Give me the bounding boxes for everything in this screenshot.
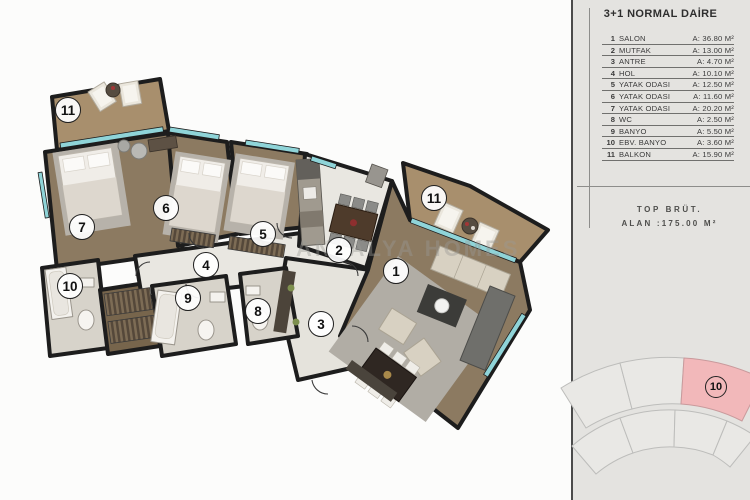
room-legend-table: 1SALONA: 36.80 M²2MUTFAKA: 13.00 M²3ANTR…: [602, 33, 734, 161]
room-bedroom-5: [231, 142, 315, 234]
legend-name: BANYO: [615, 127, 697, 137]
room-balcony-left: [52, 79, 169, 150]
legend-name: YATAK ODASI: [615, 104, 693, 114]
bed-room5: [223, 153, 294, 239]
legend-panel: 3+1 NORMAL DAİRE 1SALONA: 36.80 M²2MUTFA…: [571, 0, 750, 500]
bathtub-room9: [151, 290, 182, 345]
legend-area: A: 2.50 M²: [697, 115, 734, 125]
legend-num: 6: [602, 92, 615, 102]
legend-num: 8: [602, 115, 615, 125]
legend-num: 9: [602, 127, 615, 137]
legend-num: 3: [602, 57, 615, 67]
toilet-room10: [78, 310, 94, 330]
room-ebv-banyo-10: [42, 260, 108, 356]
legend-num: 2: [602, 46, 615, 56]
room-label-8: 8: [245, 298, 271, 324]
room-wc-8: [240, 268, 298, 344]
legend-area: A: 3.60 M²: [697, 138, 734, 148]
legend-name: ANTRE: [615, 57, 697, 67]
dining-table: [352, 340, 422, 410]
balcony-chair: [119, 81, 142, 107]
room-label-10: 10: [57, 273, 83, 299]
balcony-chair: [434, 202, 463, 233]
legend-num: 7: [602, 104, 615, 114]
legend-name: MUTFAK: [615, 46, 693, 56]
armchair: [404, 338, 441, 376]
room-wardrobe-corridor: [100, 282, 160, 354]
room-label-3: 3: [308, 311, 334, 337]
panel-horizontal-rule: [577, 186, 750, 187]
legend-area: A: 10.10 M²: [693, 69, 734, 79]
legend-row: 11BALKONA: 15.90 M²: [602, 149, 734, 161]
dresser-room5: [228, 236, 285, 258]
legend-num: 1: [602, 34, 615, 44]
legend-row: 10EBV. BANYOA: 3.60 M²: [602, 137, 734, 149]
panel-vertical-rule: [589, 8, 590, 228]
counter-room8: [273, 270, 296, 333]
plant: [293, 319, 300, 326]
balcony-chair: [88, 82, 116, 112]
bed-room7: [52, 143, 130, 236]
legend-num: 10: [602, 138, 615, 148]
legend-area: A: 36.80 M²: [693, 34, 734, 44]
room-label-5: 5: [250, 221, 276, 247]
fridge: [366, 164, 388, 188]
legend-row: 9BANYOA: 5.50 M²: [602, 126, 734, 138]
legend-name: HOL: [615, 69, 693, 79]
legend-row: 6YATAK ODASIA: 11.60 M²: [602, 91, 734, 103]
room-banyo-9: [152, 276, 236, 356]
kitchen-counter: [296, 158, 325, 245]
total-area-value: ALAN :175.00 M²: [589, 219, 750, 228]
legend-name: BALKON: [615, 150, 693, 160]
salon-rug: [329, 256, 495, 422]
room-antre-3: [279, 258, 378, 380]
room-salon-1: [340, 181, 530, 428]
apartment-type-title: 3+1 NORMAL DAİRE: [571, 8, 750, 20]
pouf: [118, 140, 130, 152]
legend-name: YATAK ODASI: [615, 80, 693, 90]
room-bedroom-6: [168, 133, 237, 246]
legend-area: A: 15.90 M²: [693, 150, 734, 160]
legend-row: 1SALONA: 36.80 M²: [602, 33, 734, 45]
balcony-table-detail: [111, 86, 115, 90]
bed-room6: [163, 151, 231, 243]
legend-area: A: 12.50 M²: [693, 80, 734, 90]
room-label-4: 4: [193, 252, 219, 278]
balcony-table-detail: [465, 222, 469, 226]
dresser-room6: [170, 228, 215, 248]
sink-room9: [210, 292, 225, 302]
legend-area: A: 20.20 M²: [693, 104, 734, 114]
balcony-table-detail: [471, 226, 475, 230]
legend-row: 8WCA: 2.50 M²: [602, 114, 734, 126]
wardrobe-room7: [148, 136, 178, 152]
legend-area: A: 4.70 M²: [697, 57, 734, 67]
shower-room10: [45, 267, 73, 319]
room-label-6: 6: [153, 195, 179, 221]
room-bedroom-7: [45, 133, 183, 270]
total-area-block: TOP BRÜT. ALAN :175.00 M²: [571, 205, 750, 228]
legend-name: YATAK ODASI: [615, 92, 693, 102]
legend-row: 4HOLA: 10.10 M²: [602, 68, 734, 80]
legend-name: WC: [615, 115, 697, 125]
legend-area: A: 13.00 M²: [693, 46, 734, 56]
room-label-7: 7: [69, 214, 95, 240]
plant: [288, 285, 295, 292]
room-label-11: 11: [55, 97, 81, 123]
legend-name: EBV. BANYO: [615, 138, 697, 148]
wardrobe-units: [104, 288, 157, 344]
legend-area: A: 11.60 M²: [693, 92, 734, 102]
tv-console: [346, 360, 398, 402]
legend-num: 5: [602, 80, 615, 90]
balcony-table: [106, 83, 120, 97]
toilet-room9: [198, 320, 214, 340]
legend-area: A: 5.50 M²: [697, 127, 734, 137]
coffee-table: [417, 284, 467, 328]
pouf: [131, 143, 147, 159]
total-area-label: TOP BRÜT.: [589, 205, 750, 214]
legend-row: 7YATAK ODASIA: 20.20 M²: [602, 103, 734, 115]
room-label-11: 11: [421, 185, 447, 211]
legend-name: SALON: [615, 34, 693, 44]
sectional-sofa: [460, 286, 515, 370]
toilet-room8: [252, 310, 268, 330]
screenshot-root: ANTALYA HOMES 3+1 NORMAL DAİRE 1SALONA: …: [0, 0, 750, 500]
balcony-table: [462, 218, 478, 234]
room-label-9: 9: [175, 285, 201, 311]
legend-num: 4: [602, 69, 615, 79]
legend-row: 2MUTFAKA: 13.00 M²: [602, 45, 734, 57]
legend-row: 5YATAK ODASIA: 12.50 M²: [602, 79, 734, 91]
sink-room10: [80, 278, 94, 287]
watermark: ANTALYA HOMES: [296, 236, 520, 262]
legend-num: 11: [602, 150, 615, 160]
legend-row: 3ANTREA: 4.70 M²: [602, 56, 734, 68]
sink-room8: [246, 286, 260, 295]
armchair: [379, 308, 417, 345]
